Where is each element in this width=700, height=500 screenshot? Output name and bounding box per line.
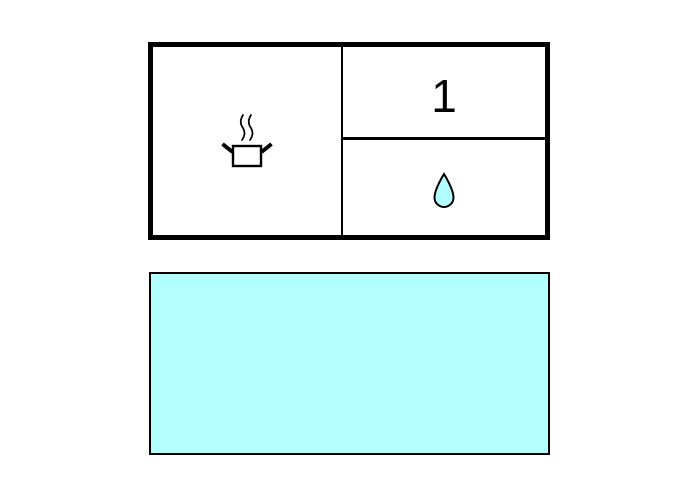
water-droplet-icon: [432, 172, 456, 210]
water-droplet-shape: [435, 174, 454, 207]
illustration-canvas: 1: [0, 0, 700, 500]
right-column: 1: [343, 47, 545, 235]
cell-droplet: [343, 140, 545, 235]
steam-wisp-right: [249, 115, 253, 140]
cell-number: 1: [343, 47, 545, 140]
water-surface-rect: [149, 272, 550, 455]
cooking-pot-steam-icon: [219, 112, 275, 170]
steam-wisp-left: [241, 115, 245, 140]
top-panel: 1: [148, 42, 550, 240]
cell-cooking-pot: [153, 47, 343, 235]
pot-handle-left: [223, 144, 233, 152]
pot-handle-right: [262, 144, 272, 152]
pot-body: [233, 146, 261, 166]
number-label: 1: [431, 65, 457, 119]
